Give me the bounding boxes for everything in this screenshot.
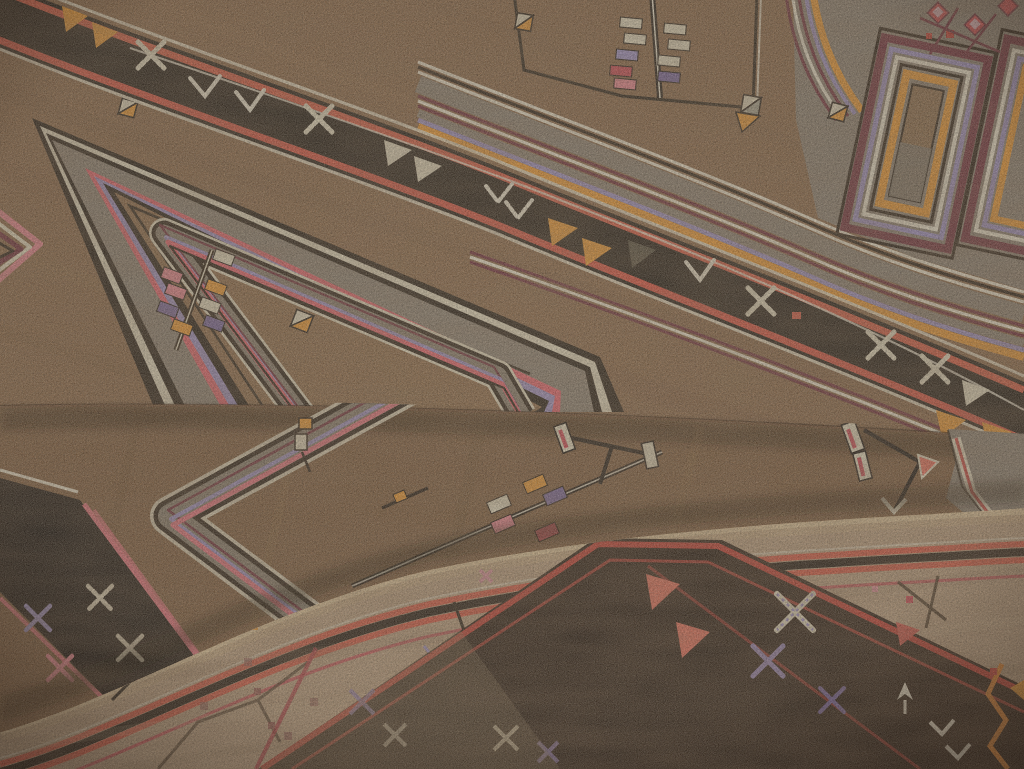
rug-photo-canvas	[0, 0, 1024, 769]
vignette	[0, 0, 1024, 769]
rug-photo	[0, 0, 1024, 769]
